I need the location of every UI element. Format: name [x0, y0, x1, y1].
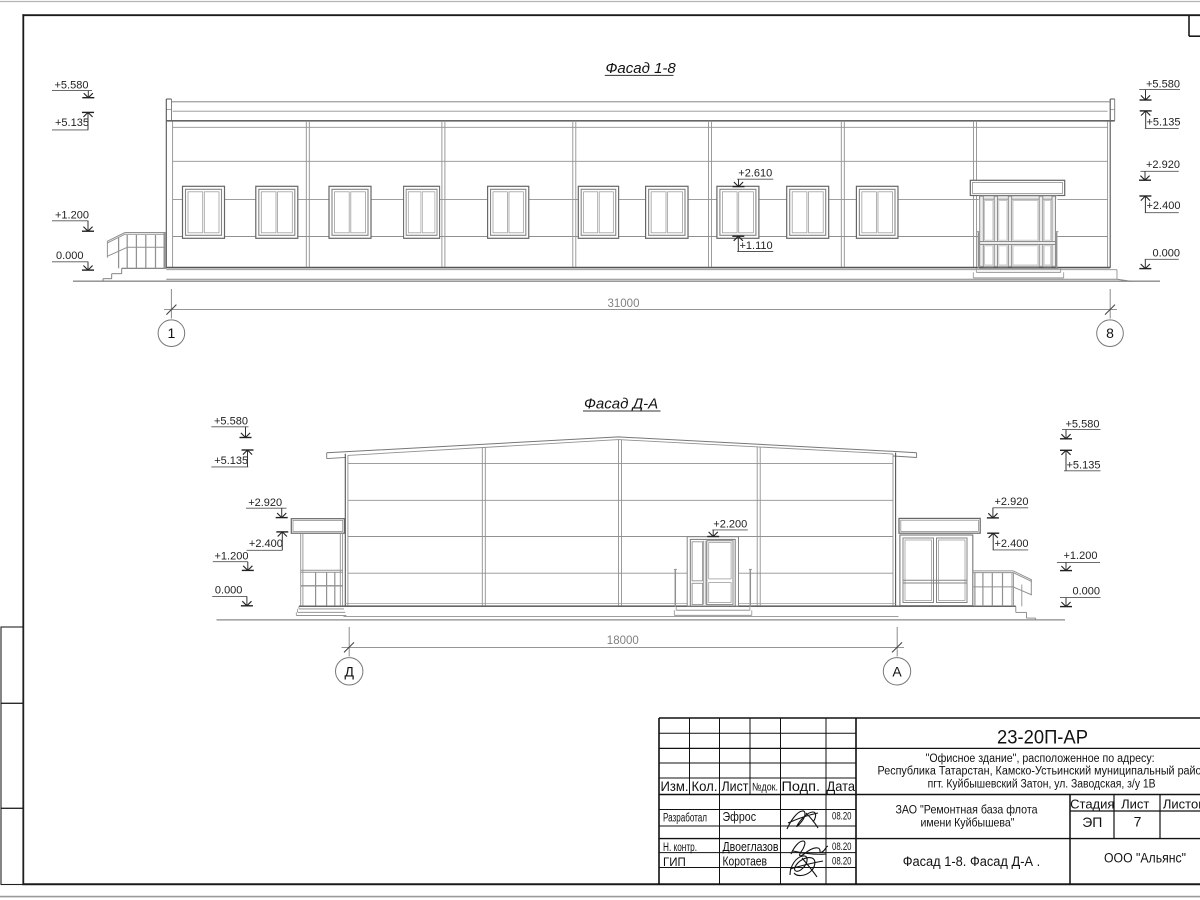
- svg-text:08.20: 08.20: [832, 856, 852, 868]
- svg-text:Фасад Д-А: Фасад Д-А: [584, 396, 658, 413]
- svg-text:пгт. Куйбышевский Затон, ул. З: пгт. Куйбышевский Затон, ул. Заводская, …: [928, 778, 1156, 790]
- svg-text:+1.200: +1.200: [1064, 550, 1098, 562]
- svg-text:Фасад 1-8. Фасад Д-А .: Фасад 1-8. Фасад Д-А .: [903, 854, 1040, 869]
- svg-text:+5.580: +5.580: [214, 416, 248, 428]
- svg-text:23-20П-АР: 23-20П-АР: [997, 728, 1088, 749]
- svg-text:18000: 18000: [607, 635, 639, 647]
- svg-text:08.20: 08.20: [832, 811, 852, 823]
- svg-text:+2.400: +2.400: [995, 538, 1029, 550]
- svg-text:+2.920: +2.920: [995, 496, 1029, 508]
- svg-text:имени Куйбышева": имени Куйбышева": [921, 815, 1015, 829]
- svg-text:1: 1: [168, 325, 176, 341]
- svg-text:ЭП: ЭП: [1082, 814, 1102, 830]
- svg-text:8: 8: [1106, 325, 1114, 341]
- svg-text:0.000: 0.000: [1153, 248, 1181, 260]
- svg-text:31000: 31000: [608, 298, 640, 310]
- svg-text:+5.135: +5.135: [1067, 460, 1101, 472]
- svg-text:Двоеглазов: Двоеглазов: [723, 839, 779, 854]
- svg-text:0.000: 0.000: [56, 250, 84, 262]
- svg-text:7: 7: [1134, 814, 1142, 830]
- svg-text:Фасад 1-8: Фасад 1-8: [606, 60, 677, 77]
- svg-text:+2.920: +2.920: [248, 497, 282, 509]
- svg-text:"Офисное здание", расположенно: "Офисное здание", расположенное по адрес…: [926, 753, 1155, 765]
- svg-text:+5.135: +5.135: [55, 117, 89, 129]
- svg-text:+5.580: +5.580: [1066, 419, 1100, 431]
- svg-text:Разработал: Разработал: [663, 813, 707, 825]
- svg-text:+5.580: +5.580: [55, 80, 89, 92]
- svg-text:Листов: Листов: [1163, 797, 1200, 812]
- svg-text:Д: Д: [344, 663, 354, 679]
- svg-text:+2.400: +2.400: [1147, 200, 1181, 212]
- svg-text:+2.200: +2.200: [713, 519, 747, 531]
- svg-text:+5.135: +5.135: [214, 455, 248, 467]
- svg-text:Стадия: Стадия: [1070, 797, 1114, 812]
- svg-text:Эфрос: Эфрос: [723, 809, 757, 824]
- svg-text:0.000: 0.000: [215, 584, 243, 596]
- svg-text:Лист: Лист: [1121, 797, 1149, 812]
- svg-text:Коротаев: Коротаев: [723, 854, 768, 869]
- svg-text:Н. контр.: Н. контр.: [663, 842, 697, 854]
- svg-text:Лист: Лист: [722, 778, 750, 794]
- svg-text:+1.110: +1.110: [740, 240, 773, 252]
- svg-text:Республика Татарстан, Камско-У: Республика Татарстан, Камско-Устьинский …: [878, 766, 1200, 778]
- svg-text:ООО "Альянс": ООО "Альянс": [1104, 851, 1186, 866]
- svg-text:+5.580: +5.580: [1146, 78, 1180, 90]
- svg-text:Изм.: Изм.: [661, 778, 689, 794]
- svg-text:Дата: Дата: [827, 778, 856, 794]
- svg-text:Кол.: Кол.: [692, 778, 718, 794]
- svg-text:+2.610: +2.610: [738, 168, 772, 180]
- svg-text:Подп.: Подп.: [782, 778, 821, 794]
- svg-text:+2.400: +2.400: [249, 538, 283, 550]
- svg-text:№док.: №док.: [752, 782, 778, 794]
- svg-text:+2.920: +2.920: [1146, 159, 1180, 171]
- svg-text:А: А: [892, 663, 902, 679]
- svg-text:+1.200: +1.200: [55, 209, 89, 221]
- svg-text:08.20: 08.20: [832, 841, 852, 853]
- svg-text:+5.135: +5.135: [1147, 117, 1181, 129]
- svg-text:+1.200: +1.200: [215, 551, 249, 563]
- svg-text:ГИП: ГИП: [663, 857, 686, 869]
- svg-text:0.000: 0.000: [1073, 585, 1101, 597]
